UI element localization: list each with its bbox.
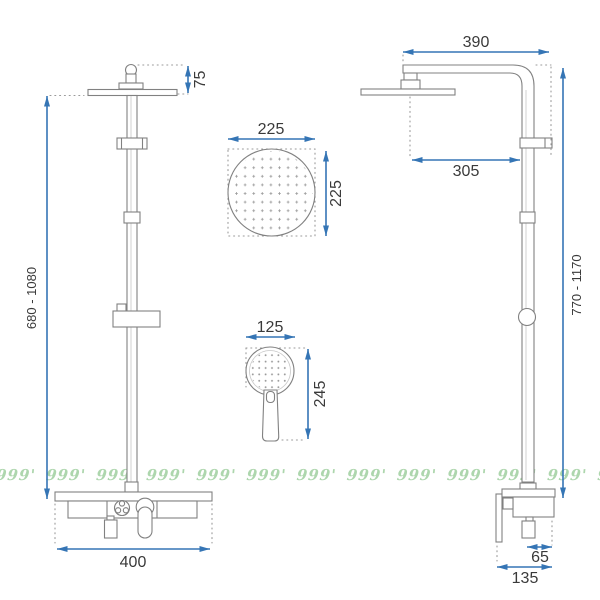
lower-coupler-front bbox=[125, 482, 138, 492]
dimension-head-height: 75 bbox=[188, 66, 209, 93]
dimension-side-arm-reach: 305 bbox=[412, 160, 520, 180]
lever-handle bbox=[138, 507, 152, 538]
diverter-knob-lobe bbox=[119, 501, 124, 506]
wall-step-side bbox=[503, 498, 513, 509]
dim-label-hand-height: 245 bbox=[312, 381, 329, 408]
dim-label-front-width: 400 bbox=[120, 554, 147, 571]
dim-label-overhead-width: 225 bbox=[258, 121, 285, 138]
shower-set-drawing: 680 - 1080 75 400 225 225 bbox=[0, 0, 600, 600]
mixer-shelf-front bbox=[55, 492, 212, 501]
dimension-front-height: 680 - 1080 bbox=[24, 96, 47, 499]
overhead-plate-side bbox=[361, 89, 455, 95]
holder-knob-side bbox=[519, 309, 536, 326]
dimension-side-depth: 135 bbox=[497, 567, 552, 587]
head-collar-front bbox=[119, 83, 143, 89]
dimension-overhead-height: 225 bbox=[326, 151, 345, 236]
dim-label-side-arm-width: 390 bbox=[463, 34, 490, 51]
dim-label-hand-width: 125 bbox=[257, 319, 284, 336]
spout-outlet-front bbox=[105, 520, 118, 538]
pipe-coupler-side bbox=[520, 212, 535, 223]
dimension-side-outlet-offset: 65 bbox=[527, 547, 552, 566]
riser-pipe-front bbox=[127, 96, 137, 484]
pipe-coupler-front bbox=[124, 212, 140, 223]
dimension-front-width: 400 bbox=[57, 549, 210, 571]
head-neck-front bbox=[126, 74, 136, 83]
dimension-side-arm-width: 390 bbox=[403, 34, 549, 52]
wall-escutcheon-side bbox=[496, 494, 502, 542]
diverter-knob-lobe bbox=[116, 508, 121, 513]
outlet-neck-side bbox=[526, 517, 533, 521]
head-joint-side bbox=[401, 80, 420, 89]
mixer-body-front bbox=[68, 501, 197, 518]
slider-bracket-side bbox=[520, 138, 552, 148]
spout-outlet-side bbox=[522, 521, 535, 538]
dim-label-front-height: 680 - 1080 bbox=[24, 267, 39, 329]
mixer-body-side bbox=[513, 497, 554, 517]
overhead-nozzle-dots bbox=[230, 151, 313, 234]
dimension-side-height: 770 - 1170 bbox=[563, 68, 584, 498]
arm-and-riser-side bbox=[403, 65, 534, 482]
handset-mode-button bbox=[267, 392, 275, 403]
overhead-shower-detail: 225 225 bbox=[228, 121, 345, 236]
dim-label-side-depth: 135 bbox=[512, 570, 539, 587]
dimension-drawing-canvas: 999' 999' 999' 999' 999' 999' 999' 999' … bbox=[0, 0, 600, 600]
mixer-top-side bbox=[502, 489, 555, 497]
dimension-hand-height: 245 bbox=[308, 349, 329, 439]
handset-nozzle-dots bbox=[251, 352, 290, 391]
side-view: 390 305 770 - 1170 65 135 bbox=[361, 34, 584, 587]
dim-label-overhead-height: 225 bbox=[328, 180, 345, 207]
dim-label-side-outlet-offset: 65 bbox=[531, 549, 549, 566]
dimension-overhead-width: 225 bbox=[228, 121, 315, 139]
handset-holder-front bbox=[113, 311, 160, 327]
overhead-plate-front bbox=[88, 90, 177, 96]
front-view: 680 - 1080 75 400 bbox=[24, 65, 212, 572]
diverter-knob-lobe bbox=[123, 508, 128, 513]
dim-label-side-arm-reach: 305 bbox=[453, 163, 480, 180]
dim-label-side-height: 770 - 1170 bbox=[569, 254, 584, 315]
head-neck-side bbox=[404, 73, 417, 80]
dimension-hand-width: 125 bbox=[246, 319, 295, 337]
hand-shower-detail: 125 245 bbox=[246, 319, 329, 441]
dim-label-head-height: 75 bbox=[192, 71, 209, 89]
outlet-tab-front bbox=[107, 516, 114, 520]
